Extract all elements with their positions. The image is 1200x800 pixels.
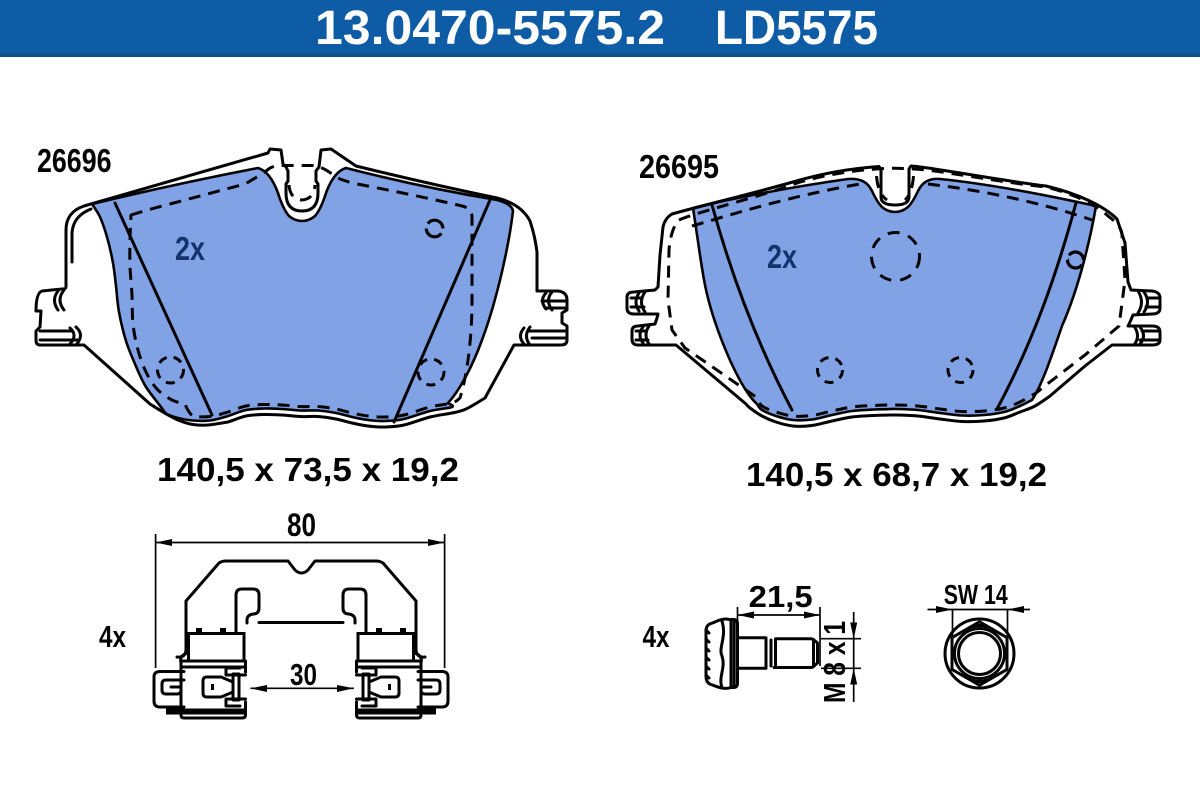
svg-text:2x: 2x	[767, 238, 798, 275]
svg-text:30: 30	[290, 657, 317, 692]
svg-text:26695: 26695	[639, 148, 719, 185]
svg-text:26696: 26696	[37, 142, 112, 179]
svg-text:140,5 x 68,7 x 19,2: 140,5 x 68,7 x 19,2	[746, 456, 1047, 493]
svg-text:M 8 x 1: M 8 x 1	[817, 621, 852, 703]
svg-text:140,5 x 73,5 x 19,2: 140,5 x 73,5 x 19,2	[157, 451, 459, 488]
svg-text:SW 14: SW 14	[944, 579, 1008, 610]
svg-text:4x: 4x	[643, 619, 671, 654]
svg-text:80: 80	[287, 507, 316, 543]
svg-text:4x: 4x	[99, 619, 127, 654]
svg-text:LD5575: LD5575	[715, 2, 878, 55]
svg-text:13.0470-5575.2: 13.0470-5575.2	[315, 2, 665, 55]
svg-text:2x: 2x	[175, 230, 206, 267]
svg-text:21,5: 21,5	[749, 579, 813, 614]
